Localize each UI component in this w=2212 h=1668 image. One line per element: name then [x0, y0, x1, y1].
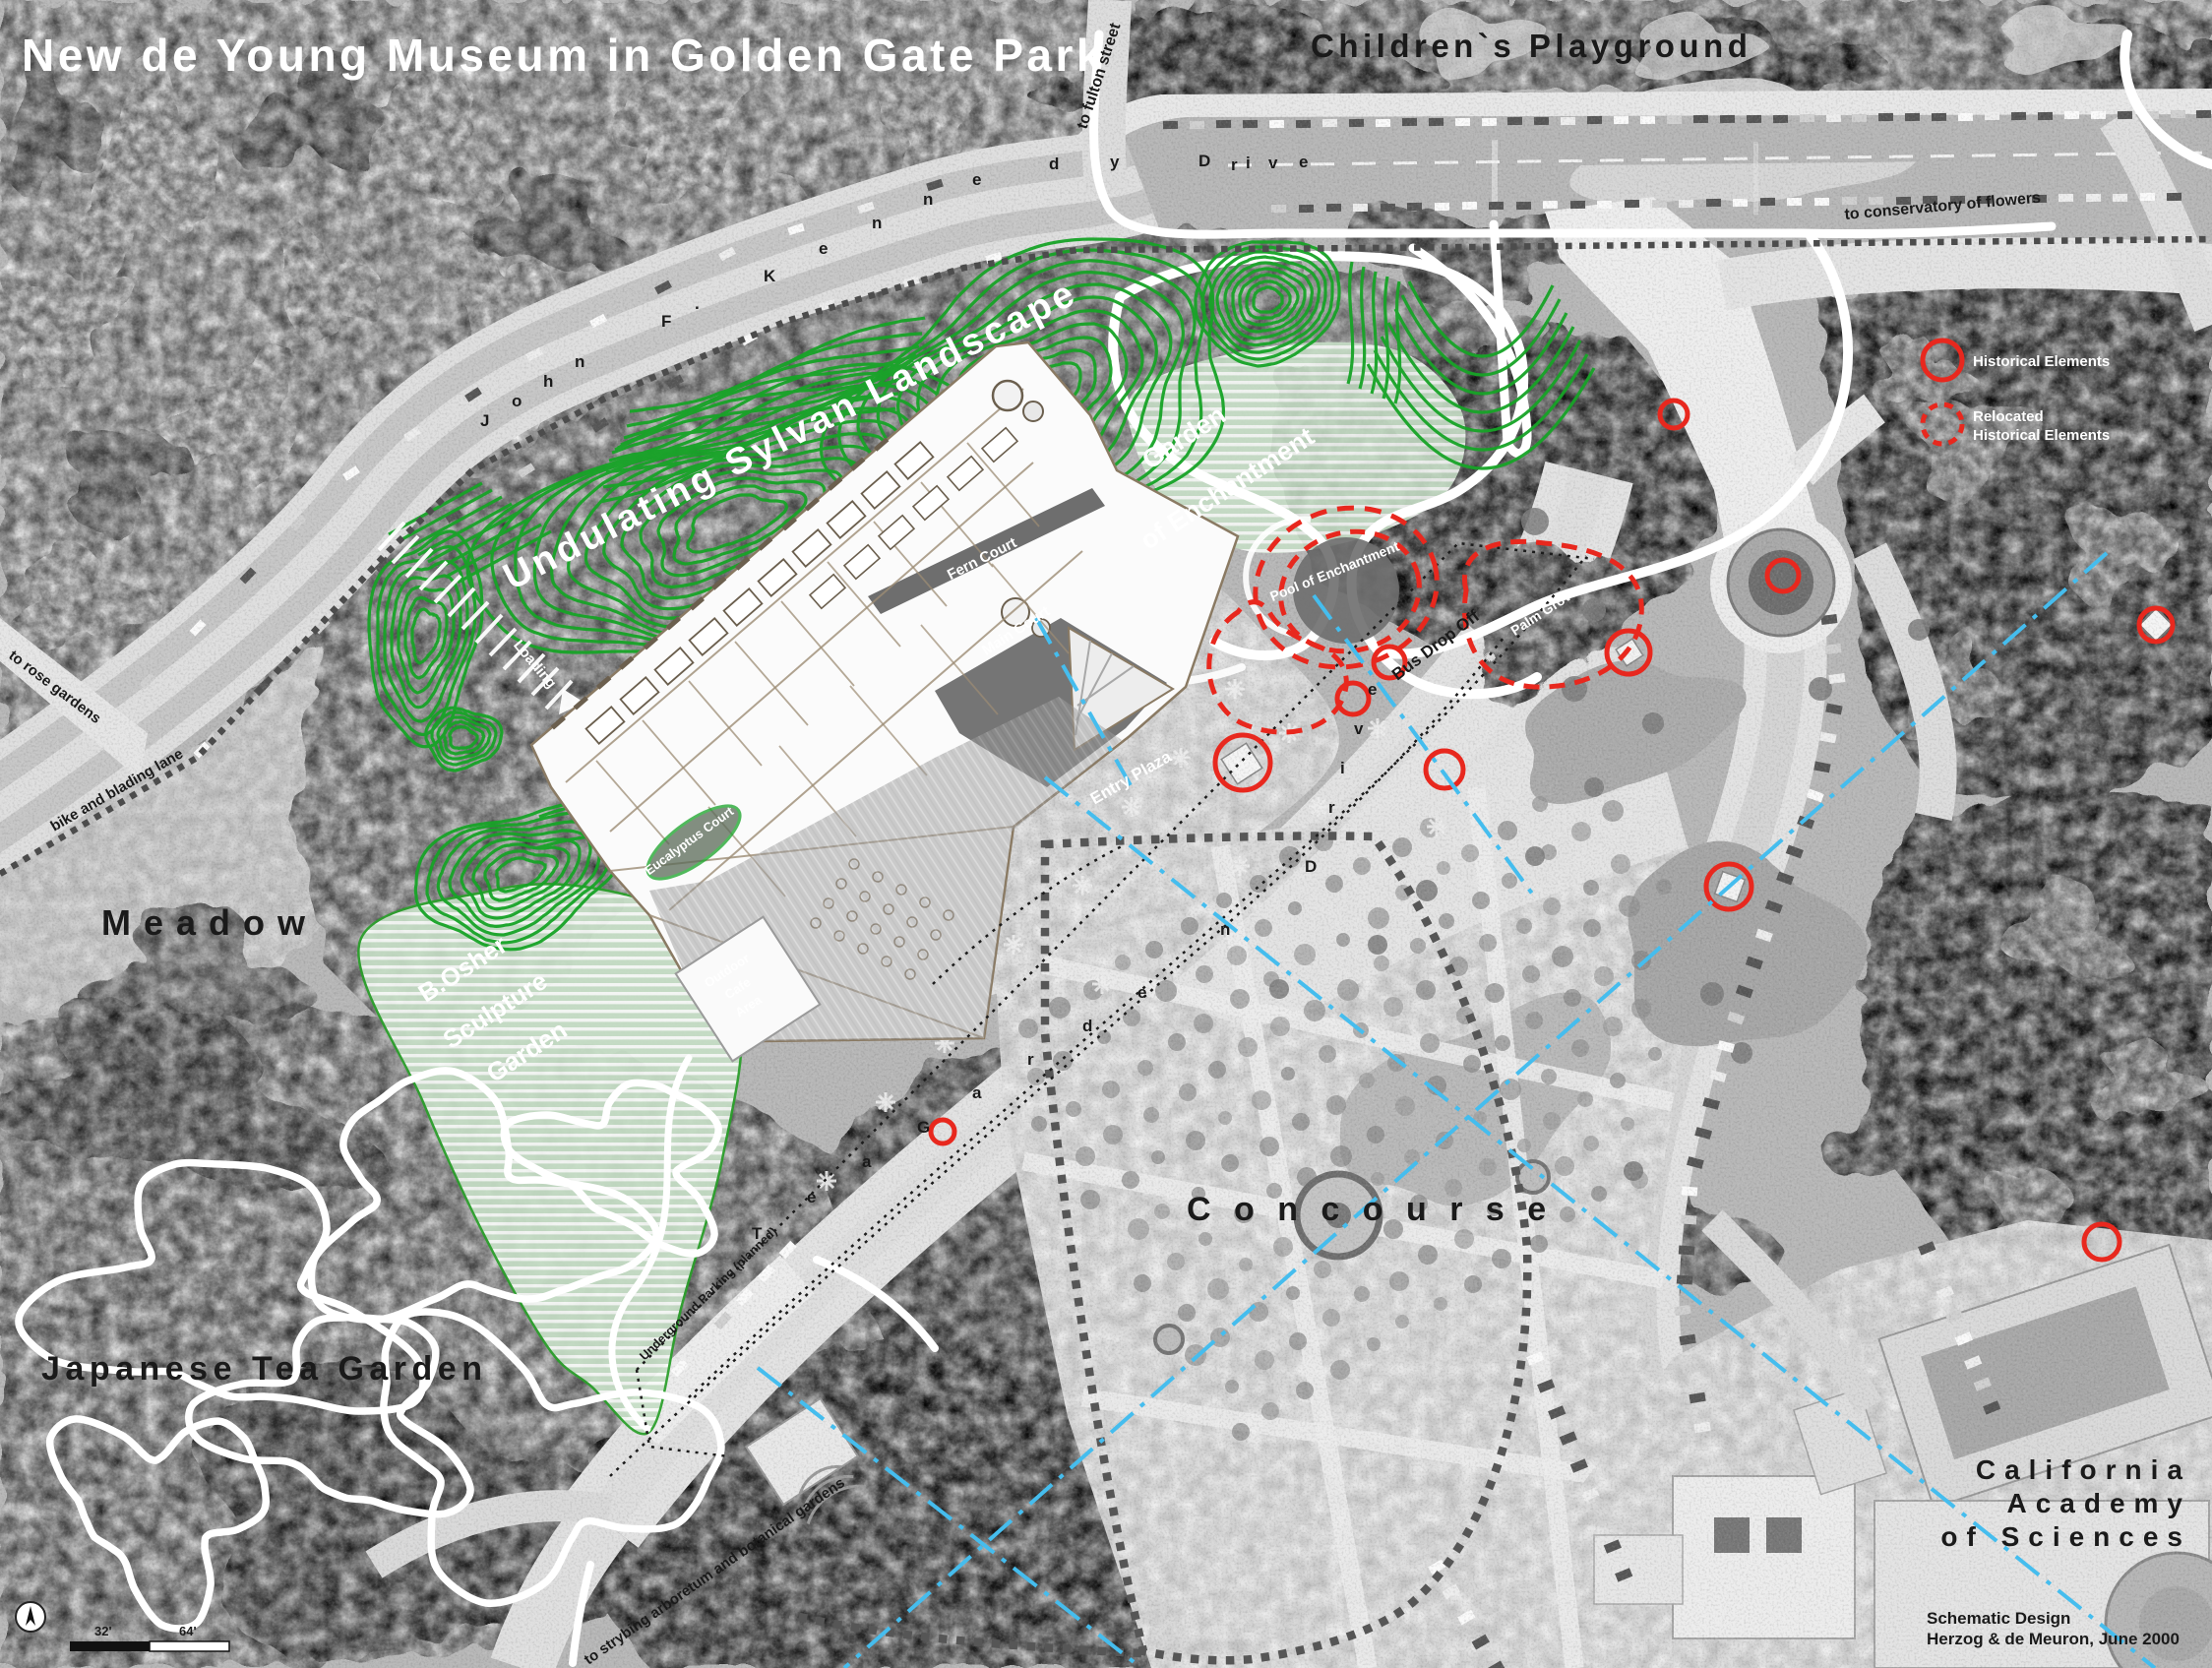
- svg-text:e: e: [1368, 680, 1377, 699]
- svg-text:J: J: [480, 411, 489, 430]
- svg-text:r: r: [1027, 1050, 1034, 1069]
- svg-text:h: h: [543, 372, 553, 391]
- svg-text:e: e: [1137, 983, 1146, 1002]
- svg-text:n: n: [872, 214, 882, 232]
- svg-text:e: e: [807, 1188, 816, 1206]
- svg-text:o: o: [512, 392, 522, 410]
- svg-text:n: n: [575, 352, 584, 371]
- svg-text:Japanese Tea Garden: Japanese Tea Garden: [41, 1350, 487, 1388]
- svg-text:e: e: [819, 239, 828, 258]
- svg-text:a: a: [862, 1152, 872, 1171]
- svg-text:r: r: [1231, 155, 1238, 174]
- svg-text:n: n: [923, 190, 933, 209]
- svg-text:Schematic Design: Schematic Design: [1927, 1609, 2070, 1628]
- svg-text:y: y: [1110, 153, 1120, 171]
- svg-text:Historical Elements: Historical Elements: [1973, 427, 2110, 444]
- svg-text:i: i: [1246, 154, 1251, 172]
- svg-text:California: California: [1976, 1454, 2191, 1485]
- svg-text:32': 32': [94, 1624, 112, 1638]
- svg-text:New de Young Museum in Golden: New de Young Museum in Golden Gate Park: [22, 30, 1105, 81]
- svg-text:Academy: Academy: [2006, 1488, 2191, 1518]
- svg-text:v: v: [1268, 154, 1278, 172]
- svg-text:n: n: [1220, 920, 1230, 939]
- svg-text:e: e: [972, 170, 981, 189]
- svg-text:Children`s Playground: Children`s Playground: [1311, 28, 1751, 64]
- svg-text:Relocated: Relocated: [1973, 408, 2044, 425]
- svg-text:Meadow: Meadow: [101, 902, 318, 943]
- svg-text:64': 64': [179, 1624, 197, 1638]
- svg-text:r: r: [1328, 798, 1335, 817]
- svg-text:of Sciences: of Sciences: [1940, 1521, 2191, 1552]
- svg-text:D: D: [1305, 857, 1317, 876]
- svg-text:F: F: [661, 312, 671, 331]
- svg-text:v: v: [1354, 719, 1364, 738]
- svg-text:.: .: [695, 294, 700, 313]
- svg-text:C o n c o u r s e: C o n c o u r s e: [1187, 1191, 1553, 1228]
- svg-text:G: G: [917, 1118, 930, 1137]
- svg-text:K: K: [764, 267, 776, 285]
- svg-text:e: e: [1299, 153, 1308, 171]
- svg-text:a: a: [972, 1083, 982, 1102]
- svg-text:d: d: [1049, 154, 1059, 173]
- svg-text:i: i: [1340, 759, 1345, 777]
- svg-text:Historical Elements: Historical Elements: [1973, 353, 2110, 370]
- svg-text:d: d: [1082, 1017, 1092, 1035]
- svg-text:Herzog & de Meuron, June 2000: Herzog & de Meuron, June 2000: [1927, 1630, 2180, 1648]
- svg-text:D: D: [1198, 152, 1210, 170]
